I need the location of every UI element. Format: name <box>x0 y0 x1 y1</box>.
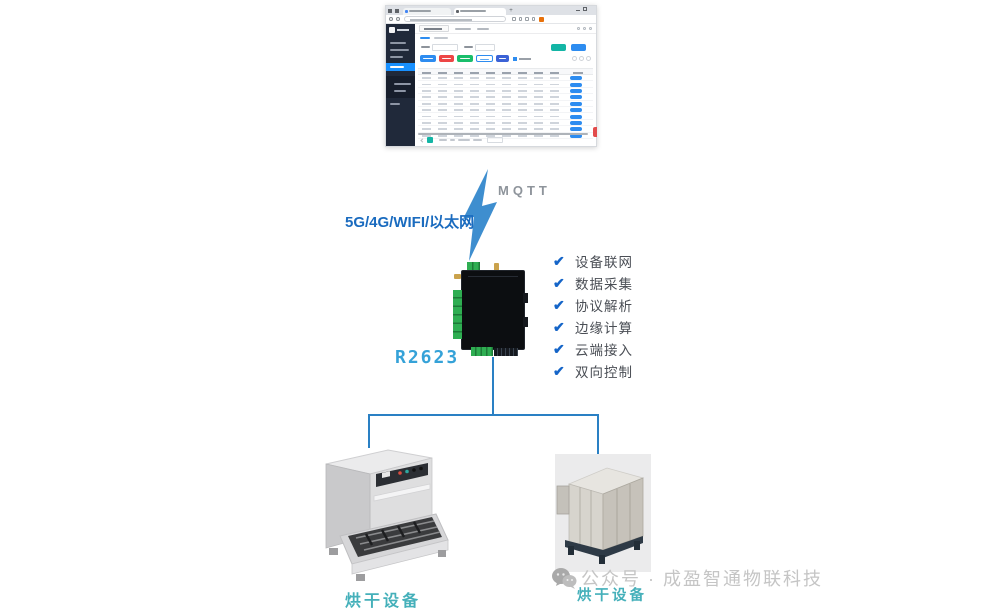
prev-page-icon <box>420 138 424 142</box>
checkbox-icon <box>513 57 517 61</box>
io-connector <box>494 348 518 356</box>
feature-label: 云端接入 <box>575 339 633 359</box>
tab-favicon <box>405 10 408 13</box>
browser-tab <box>403 8 451 15</box>
connector-gateway-down-line <box>492 357 494 415</box>
tab-favicon <box>456 10 459 13</box>
filter-input <box>432 44 458 51</box>
page-info-bar <box>458 139 470 141</box>
export-button <box>476 55 493 62</box>
mount-tab <box>523 293 528 303</box>
table-setting-icons <box>572 56 591 61</box>
protocol-label: MQTT <box>498 183 551 198</box>
extension-icon <box>519 17 523 21</box>
browser-app-icon <box>388 9 392 13</box>
tab-title-bar <box>460 10 486 12</box>
checkbox-label-bar <box>519 58 531 60</box>
filter-row <box>415 41 596 53</box>
page-tab <box>455 28 471 30</box>
maximize-icon <box>583 7 587 11</box>
network-link-label: 5G/4G/WIFI/以太网 <box>345 211 474 232</box>
drying-machine-left-image <box>296 444 456 586</box>
browser-app-icon <box>395 9 399 13</box>
delete-button <box>439 55 454 62</box>
bookmark-icon <box>512 17 516 21</box>
tab-title-bar <box>409 10 431 12</box>
logo-icon <box>389 27 395 33</box>
import-button <box>457 55 473 62</box>
sidebar-item-active <box>386 63 415 71</box>
feature-item: ✔ 设备联网 <box>553 250 633 272</box>
terminal-block <box>471 347 493 356</box>
browser-tab-active <box>454 8 506 15</box>
window-controls <box>576 7 594 11</box>
antenna-connector-icon <box>454 274 461 279</box>
table-header <box>418 68 593 75</box>
pagination <box>421 137 503 143</box>
feature-label: 数据采集 <box>575 273 633 293</box>
admin-console <box>386 24 596 146</box>
close-icon <box>590 7 594 11</box>
sidebar-submenu <box>386 76 415 98</box>
feature-item: ✔ 云端接入 <box>553 338 633 360</box>
mount-tab <box>523 317 528 327</box>
connector-right-branch-line <box>597 414 599 456</box>
breadcrumb <box>415 34 596 41</box>
page-number-bar <box>450 139 455 141</box>
feature-label: 协议解析 <box>575 295 633 315</box>
add-button <box>420 55 436 62</box>
check-icon: ✔ <box>553 275 575 292</box>
browser-toolbar <box>386 15 596 24</box>
check-icon: ✔ <box>553 297 575 314</box>
download-icon <box>525 17 529 21</box>
breadcrumb-text-bar <box>434 37 448 39</box>
console-main <box>415 24 596 146</box>
check-icon: ✔ <box>553 253 575 270</box>
feature-item: ✔ 数据采集 <box>553 272 633 294</box>
toolbar-checkbox <box>513 57 531 61</box>
sidebar-item <box>390 42 406 44</box>
feature-item: ✔ 协议解析 <box>553 294 633 316</box>
console-sidebar <box>386 24 415 146</box>
menu-icon <box>532 17 536 21</box>
feature-label: 边缘计算 <box>575 317 633 337</box>
check-icon: ✔ <box>553 341 575 358</box>
feature-item: ✔ 边缘计算 <box>553 316 633 338</box>
data-table <box>418 68 593 133</box>
horizontal-scrollbar <box>418 133 588 135</box>
active-page <box>427 137 433 143</box>
new-tab-icon: + <box>508 8 514 14</box>
device-label-left: 烘干设备 <box>345 587 421 611</box>
reset-button <box>571 44 586 51</box>
page-info-bar <box>473 139 482 141</box>
sidebar-item <box>390 49 409 51</box>
page-tab-active <box>419 25 449 32</box>
page-tab-tools <box>577 27 592 30</box>
cloud-platform-screenshot: + <box>385 5 597 147</box>
gateway-feature-list: ✔ 设备联网 ✔ 数据采集 ✔ 协议解析 ✔ 边缘计算 ✔ 云端接入 ✔ 双向控… <box>553 250 633 382</box>
logo-text-bar <box>397 29 409 31</box>
browser-tab-bar: + <box>386 6 596 15</box>
terminal-block <box>453 290 462 339</box>
minimize-icon <box>576 7 580 11</box>
gateway-device-image <box>448 261 532 357</box>
filter-label-bar <box>421 46 430 48</box>
check-icon: ✔ <box>553 363 575 380</box>
iot-architecture-diagram: + <box>0 0 1000 611</box>
sidebar-subitem <box>394 83 411 85</box>
check-icon: ✔ <box>553 319 575 336</box>
search-button <box>551 44 566 51</box>
gateway-enclosure <box>461 270 525 350</box>
page-tab <box>477 28 489 30</box>
sidebar-item <box>390 103 400 105</box>
filter-select <box>475 44 495 51</box>
back-icon <box>389 17 393 21</box>
page-size-select <box>487 137 503 143</box>
sidebar-subitem <box>394 90 406 92</box>
profile-avatar <box>539 17 544 22</box>
gateway-model-label: R2623 <box>395 347 459 368</box>
wechat-icon <box>551 566 577 590</box>
page-number-bar <box>439 139 447 141</box>
feature-label: 设备联网 <box>575 251 633 271</box>
console-logo <box>386 24 415 37</box>
device-label-right: 烘干设备 <box>577 584 647 605</box>
terminal-block <box>467 262 480 270</box>
drying-machine-right-image <box>555 454 651 572</box>
feature-label: 双向控制 <box>575 361 633 381</box>
side-float-tag <box>593 127 597 137</box>
url-bar <box>404 16 506 22</box>
refresh-button <box>496 55 509 62</box>
reload-icon <box>396 17 400 21</box>
connector-horizontal-line <box>368 414 599 416</box>
sidebar-item <box>390 56 403 58</box>
page-tabs <box>415 24 596 34</box>
breadcrumb-link-bar <box>420 37 430 39</box>
table-toolbar <box>415 53 596 64</box>
filter-label-bar <box>464 46 473 48</box>
connector-left-branch-line <box>368 414 370 448</box>
toolbar-icons <box>512 17 535 21</box>
feature-item: ✔ 双向控制 <box>553 360 633 382</box>
